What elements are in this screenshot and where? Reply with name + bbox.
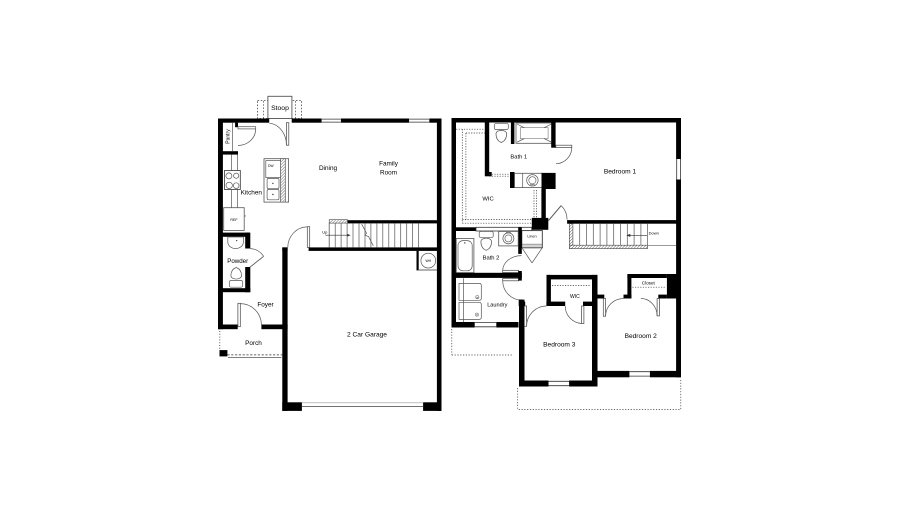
svg-text:Pantry: Pantry	[226, 129, 232, 144]
svg-text:Room: Room	[380, 170, 397, 177]
svg-text:DW: DW	[268, 164, 274, 168]
svg-text:Laundry: Laundry	[487, 303, 507, 309]
svg-text:Dining: Dining	[319, 165, 338, 172]
svg-text:2 Car Garage: 2 Car Garage	[347, 331, 387, 338]
svg-text:Porch: Porch	[245, 340, 262, 347]
svg-text:WIC: WIC	[570, 294, 580, 300]
svg-text:Bedroom 3: Bedroom 3	[543, 342, 576, 349]
svg-text:WIC: WIC	[482, 196, 493, 202]
svg-text:Bedroom 2: Bedroom 2	[625, 333, 658, 340]
svg-text:Bath 1: Bath 1	[510, 155, 527, 161]
svg-text:Bedroom 1: Bedroom 1	[604, 168, 637, 175]
svg-text:Foyer: Foyer	[257, 301, 274, 308]
svg-text:WH: WH	[425, 259, 431, 263]
svg-text:Bath 2: Bath 2	[483, 255, 500, 261]
svg-text:REF: REF	[230, 218, 238, 222]
svg-text:Up: Up	[322, 230, 328, 235]
svg-text:Kitchen: Kitchen	[241, 190, 263, 197]
svg-text:Closet: Closet	[642, 280, 656, 285]
svg-text:Powder: Powder	[227, 258, 248, 265]
svg-text:Down: Down	[649, 231, 659, 236]
svg-text:w: w	[476, 296, 478, 299]
svg-text:Stoop: Stoop	[271, 105, 289, 112]
svg-text:Family: Family	[379, 161, 399, 168]
svg-text:Linen: Linen	[527, 234, 536, 238]
